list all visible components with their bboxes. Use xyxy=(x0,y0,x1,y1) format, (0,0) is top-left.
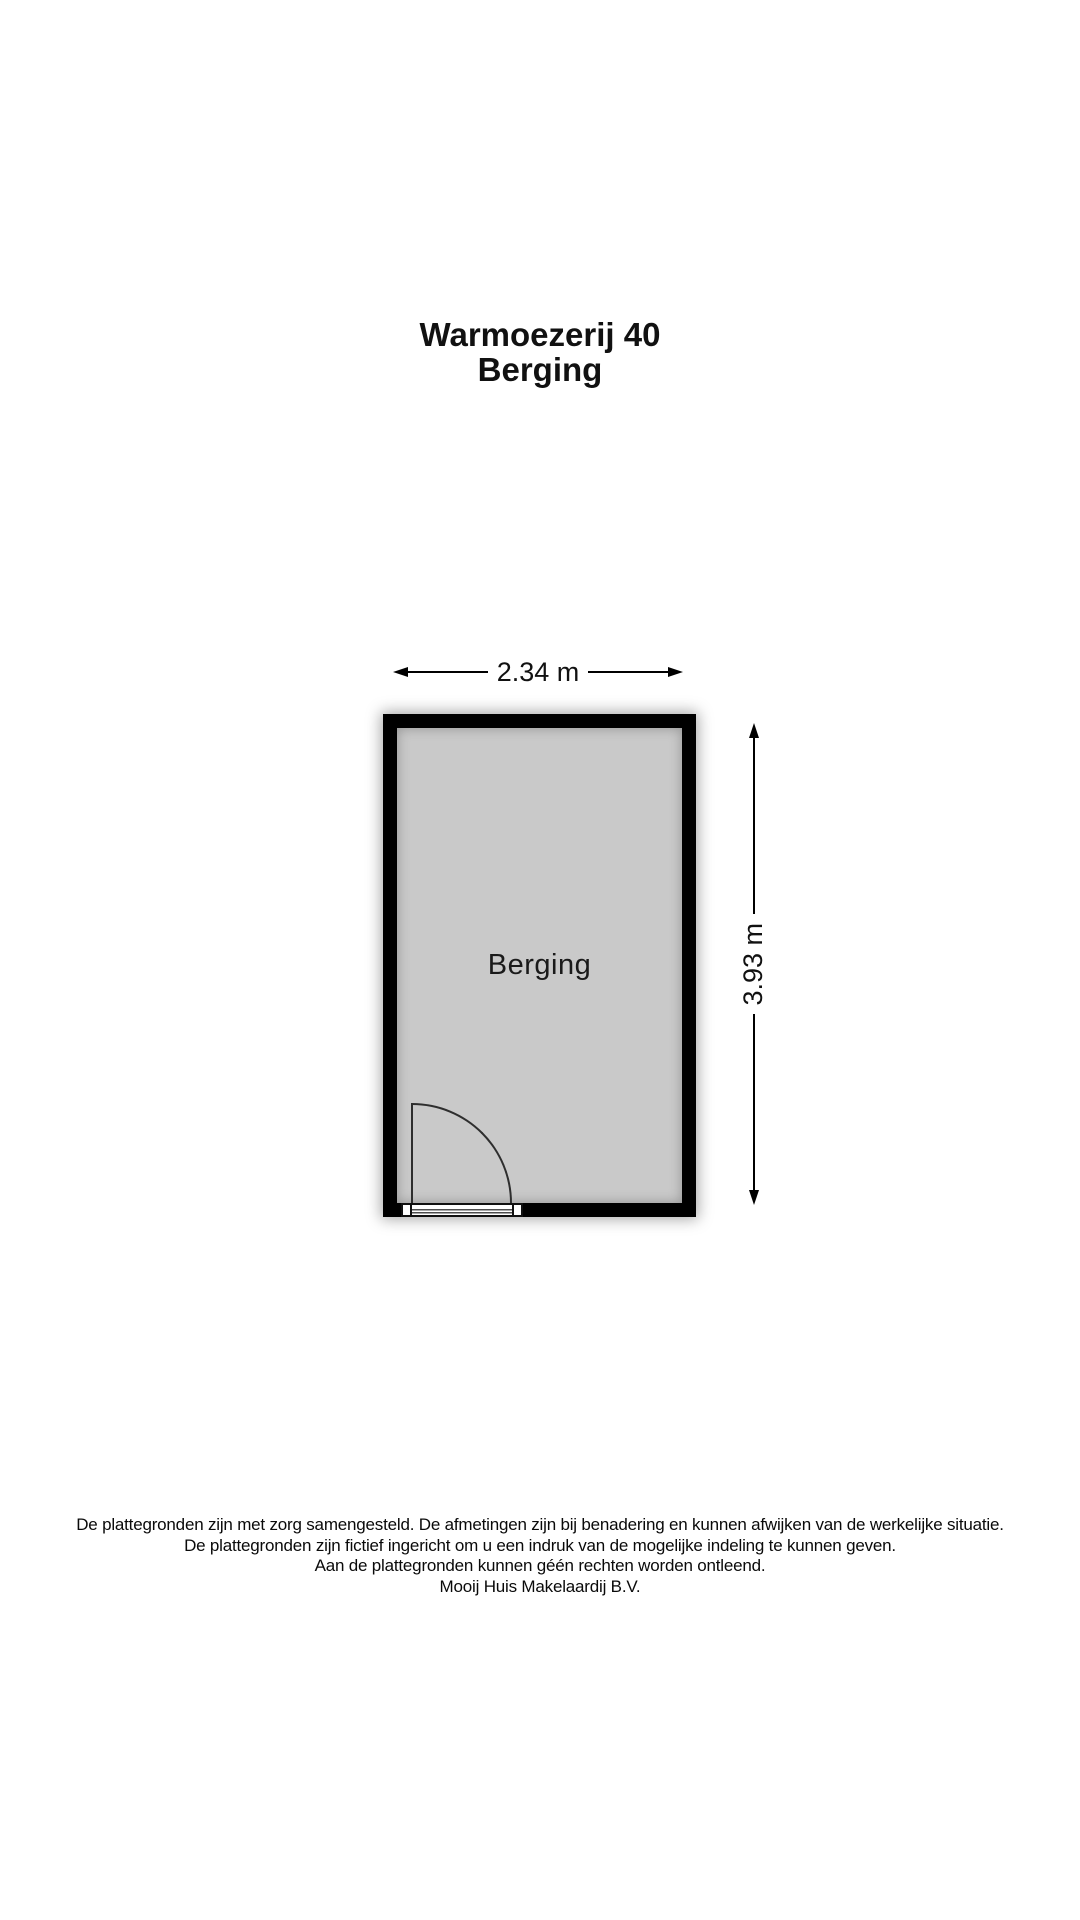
door-jamb-right xyxy=(512,1203,523,1217)
disclaimer-line-4: Mooij Huis Makelaardij B.V. xyxy=(0,1577,1080,1598)
width-dimension-label: 2.34 m xyxy=(488,657,589,688)
width-dimension: 2.34 m xyxy=(393,657,683,687)
title-floor-name: Berging xyxy=(0,352,1080,387)
dimension-line-bottom xyxy=(753,1014,755,1190)
disclaimer: De plattegronden zijn met zorg samengest… xyxy=(0,1515,1080,1597)
floorplan-room-outline: Berging xyxy=(383,714,696,1217)
room-label: Berging xyxy=(488,949,591,982)
floorplan-page: Warmoezerij 40 Berging 2.34 m Berging 3.… xyxy=(0,0,1080,1920)
disclaimer-line-3: Aan de plattegronden kunnen géén rechten… xyxy=(0,1556,1080,1577)
arrowhead-left-icon xyxy=(393,667,408,677)
dimension-line-right xyxy=(588,671,668,673)
disclaimer-line-2: De plattegronden zijn fictief ingericht … xyxy=(0,1536,1080,1557)
door-jamb-left xyxy=(401,1203,412,1217)
dimension-line-top xyxy=(753,738,755,914)
dimension-line-left xyxy=(408,671,488,673)
door-threshold xyxy=(412,1203,512,1217)
height-dimension: 3.93 m xyxy=(740,723,767,1205)
page-title: Warmoezerij 40 Berging xyxy=(0,317,1080,387)
arrowhead-down-icon xyxy=(749,1190,759,1205)
arrowhead-right-icon xyxy=(668,667,683,677)
disclaimer-line-1: De plattegronden zijn met zorg samengest… xyxy=(0,1515,1080,1536)
arrowhead-up-icon xyxy=(749,723,759,738)
title-address: Warmoezerij 40 xyxy=(0,317,1080,352)
height-dimension-label: 3.93 m xyxy=(738,914,769,1015)
